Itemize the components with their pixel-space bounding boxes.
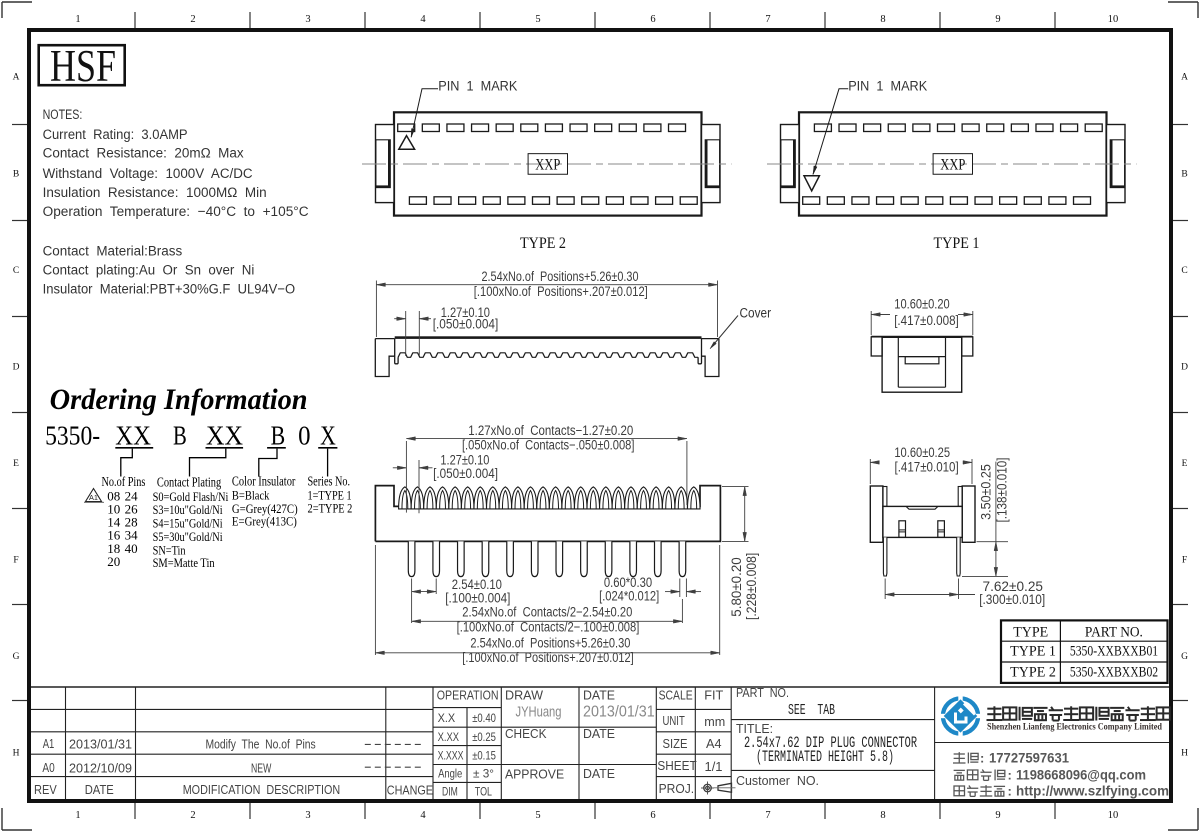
svg-text:10.60±0.20: 10.60±0.20 [894,297,949,312]
svg-text:2.54xNo.of Positions+5.26±0.3: 2.54xNo.of Positions+5.26±0.30 [482,269,639,284]
svg-text:7: 7 [765,810,770,821]
svg-text:F: F [1182,556,1187,566]
svg-text:10.60±0.25: 10.60±0.25 [894,445,950,460]
svg-text:E=Grey(413C): E=Grey(413C) [232,514,297,529]
svg-text:10: 10 [1108,14,1119,25]
svg-text:DATE: DATE [583,726,615,741]
svg-text:[.100xNo.of Contacts/2−.100±0: [.100xNo.of Contacts/2−.100±0.008] [457,620,640,635]
svg-text:[.024*0.012]: [.024*0.012] [599,589,659,604]
svg-text:8: 8 [880,14,885,25]
svg-text:PIN 1 MARK: PIN 1 MARK [438,79,517,94]
svg-text:[.417±0.008]: [.417±0.008] [894,313,959,328]
svg-text:A: A [1181,73,1188,83]
svg-text:B: B [1181,169,1187,179]
svg-text:[.138±0.010]: [.138±0.010] [995,458,1010,523]
svg-text:TYPE 2: TYPE 2 [1010,665,1056,681]
svg-text:SIZE: SIZE [663,736,688,751]
svg-text:NOTES:: NOTES: [43,107,83,123]
svg-text:Shenzhen Lianfeng Electronics: Shenzhen Lianfeng Electronics Company Li… [987,723,1163,733]
svg-text:6: 6 [650,14,655,25]
svg-text:Contact Plating: Contact Plating [157,475,221,490]
svg-text:Contact Resistance: 20mΩ Ma: Contact Resistance: 20mΩ Max [43,146,244,162]
svg-text:PART NO.: PART NO. [1085,625,1143,641]
svg-text:7: 7 [765,14,770,25]
svg-text:F: F [13,556,18,566]
svg-text:[.050xNo.of Contacts−.050±0.0: [.050xNo.of Contacts−.050±0.008] [462,437,635,452]
svg-text:[.050±0.004]: [.050±0.004] [433,317,499,332]
svg-text:1198668096@qq.com: 1198668096@qq.com [1016,767,1146,783]
svg-text:2013/01/31: 2013/01/31 [69,738,132,752]
svg-text:1: 1 [75,14,80,25]
svg-text:PROJ.: PROJ. [659,781,695,796]
svg-text:Color Insulator: Color Insulator [232,473,296,488]
svg-text:5350-XXBXXB02: 5350-XXBXXB02 [1070,665,1158,681]
svg-text:2.54xNo.of Contacts/2−2.54±0.: 2.54xNo.of Contacts/2−2.54±0.20 [462,605,632,620]
svg-text::: : [1008,783,1012,798]
svg-text:SM=Matte Tin: SM=Matte Tin [153,555,215,570]
svg-text:PART NO.: PART NO. [736,685,789,700]
svg-text:0: 0 [298,420,310,451]
svg-text:10: 10 [1108,810,1119,821]
svg-text:NEW: NEW [251,762,271,776]
svg-text:CHECK: CHECK [505,726,547,741]
svg-text:X.XX: X.XX [438,732,460,744]
svg-text:(TERMINATED HEIGHT 5.8): (TERMINATED HEIGHT 5.8) [756,748,894,766]
svg-text:OPERATION: OPERATION [437,688,499,703]
svg-text:DATE: DATE [85,782,114,797]
svg-text:XXP: XXP [535,157,560,174]
svg-text:Ordering Information: Ordering Information [50,383,308,416]
svg-text:C: C [1181,266,1187,276]
svg-text:5: 5 [535,810,540,821]
svg-text:JYHuang: JYHuang [516,705,562,721]
svg-text:Insulator Material:PBT+30%G.F: Insulator Material:PBT+30%G.F UL94V−O [43,282,296,298]
svg-text:2=TYPE 2: 2=TYPE 2 [308,501,353,516]
svg-text:SEE TAB: SEE TAB [788,703,835,719]
svg-text:Customer NO.: Customer NO. [736,773,819,788]
svg-text:±0.25: ±0.25 [472,732,496,744]
svg-text:±0.40: ±0.40 [472,713,496,725]
svg-text:X.XXX: X.XXX [438,751,464,763]
svg-text:D: D [1181,362,1188,372]
svg-text:TYPE 1: TYPE 1 [1010,644,1056,660]
svg-text:Modify The No.of Pins: Modify The No.of Pins [206,738,316,752]
svg-text::: : [980,750,984,765]
svg-text:E: E [1182,459,1188,469]
svg-text:TYPE: TYPE [1013,625,1048,641]
svg-text:Withstand Voltage: 1000V AC: Withstand Voltage: 1000V AC/DC [43,166,253,182]
svg-text:XX: XX [115,420,151,451]
svg-text:[.100xNo.of Positions+.207±0.: [.100xNo.of Positions+.207±0.012] [462,650,633,665]
svg-text:G: G [1181,652,1188,662]
svg-text:[.300±0.010]: [.300±0.010] [979,592,1045,607]
svg-text:X: X [320,420,336,451]
svg-text:A0: A0 [42,761,54,775]
svg-text:Insulation Resistance: 1000M: Insulation Resistance: 1000MΩ Min [43,185,267,201]
svg-text:±0.15: ±0.15 [472,751,496,763]
svg-text:A1: A1 [43,737,55,751]
svg-text:± 3°: ± 3° [473,769,494,781]
svg-text:DRAW: DRAW [505,688,544,703]
svg-text:PIN 1 MARK: PIN 1 MARK [848,79,927,94]
svg-text:APPROVE: APPROVE [505,766,564,781]
svg-text:[.100±0.004]: [.100±0.004] [445,590,510,605]
svg-text:B: B [173,420,187,451]
svg-text:1: 1 [75,810,80,821]
svg-text:5: 5 [535,14,540,25]
svg-text:Contact Material:Brass: Contact Material:Brass [43,244,183,260]
svg-text:TYPE 1: TYPE 1 [934,235,980,252]
svg-text:2.54xNo.of Positions+5.26±0.3: 2.54xNo.of Positions+5.26±0.30 [470,636,630,651]
svg-text:D: D [13,362,20,372]
svg-text:Operation Temperature: −40°C: Operation Temperature: −40°C to +105°C [43,204,309,220]
svg-text:20: 20 [107,554,120,569]
svg-text:G: G [13,652,20,662]
svg-text:Series No.: Series No. [308,473,351,488]
svg-text:TYPE 2: TYPE 2 [520,235,566,252]
svg-text:X.X: X.X [438,713,456,725]
svg-text:2: 2 [190,810,195,821]
svg-text:[.100xNo.of Positions+.207±0.: [.100xNo.of Positions+.207±0.012] [474,284,648,299]
svg-text:SCALE: SCALE [659,688,693,703]
svg-text:2: 2 [190,14,195,25]
svg-text:UNIT: UNIT [663,713,685,728]
svg-text:[.228±0.008]: [.228±0.008] [744,553,759,620]
svg-text::: : [1008,768,1012,783]
svg-text:[.050±0.004]: [.050±0.004] [433,466,498,481]
svg-text:A1: A1 [89,493,98,502]
svg-text:8: 8 [880,810,885,821]
svg-text:DATE: DATE [583,766,615,781]
svg-text:A4: A4 [706,736,722,751]
svg-text:5350-: 5350- [45,420,100,451]
svg-text:[.417±0.010]: [.417±0.010] [895,459,959,474]
svg-text:B: B [13,169,19,179]
svg-text:FIT: FIT [704,688,723,703]
svg-text:A: A [13,73,20,83]
svg-text:H: H [1181,749,1188,759]
svg-text:mm: mm [704,714,725,729]
svg-text:B: B [271,420,286,451]
svg-text:No.of Pins: No.of Pins [102,474,146,489]
svg-text:DATE: DATE [583,688,615,703]
svg-text:HSF: HSF [50,41,116,91]
svg-text:40: 40 [125,541,138,556]
svg-text:5.80±0.20: 5.80±0.20 [729,557,744,616]
svg-text:1/1: 1/1 [705,759,723,774]
svg-text:Cover: Cover [740,306,772,321]
svg-text:MODIFICATION DESCRIPTION: MODIFICATION DESCRIPTION [183,782,341,797]
svg-text:REV: REV [34,782,57,797]
svg-text:C: C [13,266,19,276]
svg-text:5350-XXBXXB01: 5350-XXBXXB01 [1070,644,1158,660]
svg-text:2013/01/31: 2013/01/31 [583,704,655,721]
svg-text:CHANGE: CHANGE [387,783,433,798]
svg-text:3: 3 [305,810,310,821]
svg-text:4: 4 [420,14,426,25]
svg-text:E: E [13,459,19,469]
svg-text:3.50±0.25: 3.50±0.25 [979,464,994,520]
svg-text:3: 3 [305,14,310,25]
svg-text:XX: XX [206,420,243,451]
svg-text:6: 6 [650,810,655,821]
svg-text:9: 9 [995,810,1000,821]
svg-text:Angle: Angle [438,769,462,781]
svg-text:9: 9 [995,14,1000,25]
svg-text:H: H [13,749,20,759]
svg-text:1.27xNo.of Contacts−1.27±0.20: 1.27xNo.of Contacts−1.27±0.20 [468,423,633,438]
svg-text:2012/10/09: 2012/10/09 [69,762,132,776]
svg-text:XXP: XXP [940,157,965,174]
svg-text:TOL: TOL [475,786,493,798]
svg-text:4: 4 [420,810,426,821]
svg-text:17727597631: 17727597631 [989,749,1069,765]
svg-text:DIM: DIM [442,786,458,798]
svg-text:SHEET: SHEET [657,758,696,773]
svg-text:Contact plating:Au Or Sn o: Contact plating:Au Or Sn over Ni [43,262,255,278]
svg-text:http://www.szlfying.com: http://www.szlfying.com [1016,782,1169,798]
svg-text:Current Rating: 3.0AMP: Current Rating: 3.0AMP [43,127,188,143]
